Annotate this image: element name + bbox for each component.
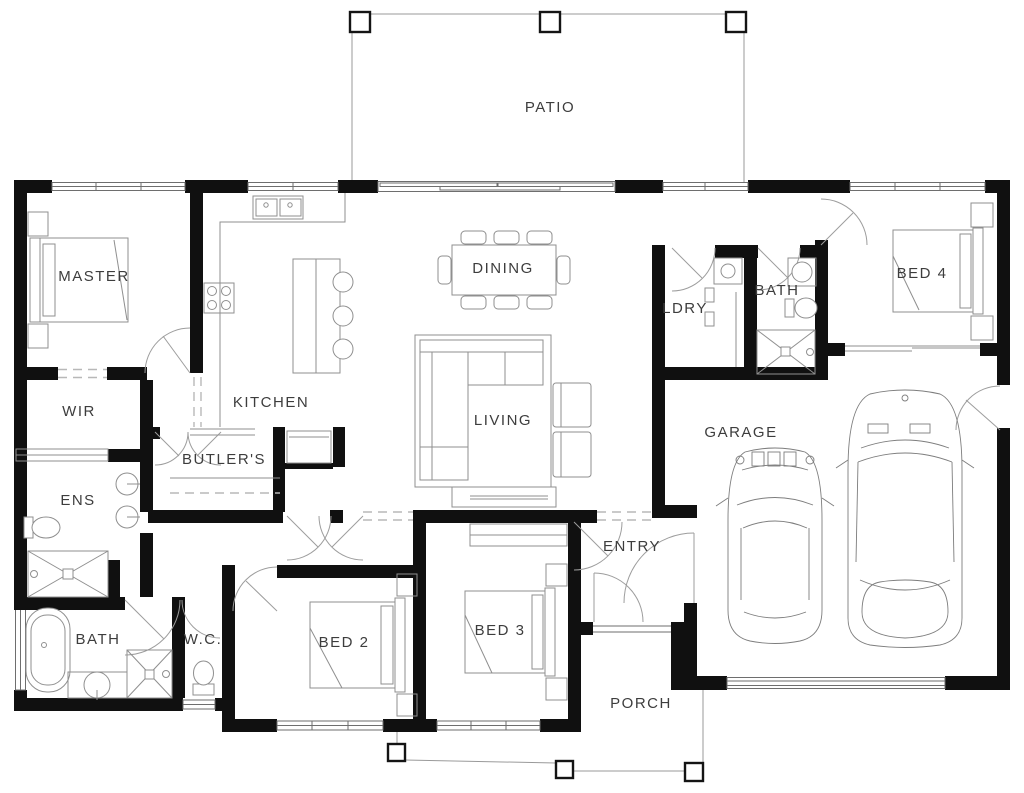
door-entry-front (594, 573, 643, 622)
fridge-icon (287, 431, 331, 463)
basin-icon (116, 473, 140, 495)
bedside-table (28, 324, 48, 348)
chair-icon (461, 296, 486, 309)
bedside-table (546, 564, 567, 586)
chair-icon (494, 296, 519, 309)
window (183, 700, 215, 709)
basin-icon (116, 506, 140, 528)
bedside-table (28, 212, 48, 236)
wir-shelving (16, 449, 108, 461)
door-bath-lower (125, 600, 180, 655)
room-label-wir: WIR (62, 403, 96, 420)
cooktop-icon (204, 283, 234, 313)
room-label-garage: GARAGE (704, 424, 777, 441)
room-label-ldry: LDRY (662, 300, 708, 317)
patio-outline (350, 12, 746, 183)
armchair-icon (553, 383, 591, 427)
room-label-living: LIVING (474, 412, 532, 429)
room-label-ens: ENS (60, 492, 95, 509)
car-icon (716, 448, 834, 644)
room-label-bath-upper: BATH (755, 282, 800, 299)
room-label-bed2: BED 2 (319, 634, 370, 651)
porch-post (388, 744, 405, 761)
patio-post (350, 12, 370, 32)
room-label-butlers: BUTLER'S (182, 451, 266, 468)
island-bench (293, 259, 353, 373)
toilet-icon (193, 661, 214, 695)
door-ldry (672, 248, 715, 291)
window (16, 608, 26, 690)
window (437, 721, 540, 730)
room-label-patio: PATIO (525, 99, 575, 116)
car-icon (836, 390, 974, 648)
bench-edge (220, 193, 345, 427)
room-label-bed4: BED 4 (897, 265, 948, 282)
chair-icon (557, 256, 570, 284)
room-label-wc: W.C. (184, 631, 223, 648)
room-label-dining: DINING (472, 260, 534, 277)
wardrobe-sliding-door (845, 346, 980, 351)
window (663, 183, 748, 191)
chair-icon (527, 231, 552, 244)
bedside-table (546, 678, 567, 700)
window (850, 183, 985, 191)
chair-icon (438, 256, 451, 284)
window (52, 183, 185, 191)
sink-icon (253, 196, 303, 219)
door-bed2 (233, 567, 277, 611)
rug (415, 335, 551, 487)
door-garage-rear (956, 386, 1000, 430)
vanity-icon (68, 672, 127, 700)
room-label-bed3: BED 3 (475, 622, 526, 639)
door-master (145, 328, 190, 373)
window (248, 183, 338, 191)
garage-door (727, 678, 945, 689)
room-label-porch: PORCH (610, 695, 672, 712)
room-label-bath-lower: BATH (76, 631, 121, 648)
stool-icon (333, 306, 353, 326)
porch-post (556, 761, 573, 778)
patio-post (726, 12, 746, 32)
door-bed4 (821, 199, 867, 245)
bathroom-fixtures (26, 608, 214, 700)
window (277, 721, 383, 730)
chair-icon (461, 231, 486, 244)
room-label-kitchen: KITCHEN (233, 394, 309, 411)
door-threshold (593, 626, 671, 632)
toilet-icon (24, 517, 60, 538)
tv-unit-icon (452, 487, 556, 507)
sliding-door (378, 182, 615, 192)
bathtub-icon (26, 608, 70, 692)
chair-icon (494, 231, 519, 244)
bath-upper-fixtures (757, 258, 817, 374)
sofa-icon (420, 340, 543, 480)
wardrobe-icon (470, 524, 567, 546)
room-label-master: MASTER (58, 268, 130, 285)
patio-post (540, 12, 560, 32)
stool-icon (333, 339, 353, 359)
armchair-icon (553, 432, 591, 477)
laundry-tub-icon (714, 258, 742, 284)
floor-plan: PATIO MASTER KITCHEN DINING LDRY BATH BE… (0, 0, 1024, 793)
kitchen-fittings (204, 193, 353, 427)
bedside-table (971, 316, 993, 340)
stool-icon (333, 272, 353, 292)
toilet-icon (785, 298, 817, 318)
porch-post (685, 763, 703, 781)
laundry-fittings (705, 258, 742, 367)
chair-icon (527, 296, 552, 309)
shower-icon (28, 551, 108, 597)
bed3-furniture (465, 524, 567, 700)
bedside-table (971, 203, 993, 227)
room-label-entry: ENTRY (603, 538, 661, 555)
shower-icon (127, 650, 172, 698)
